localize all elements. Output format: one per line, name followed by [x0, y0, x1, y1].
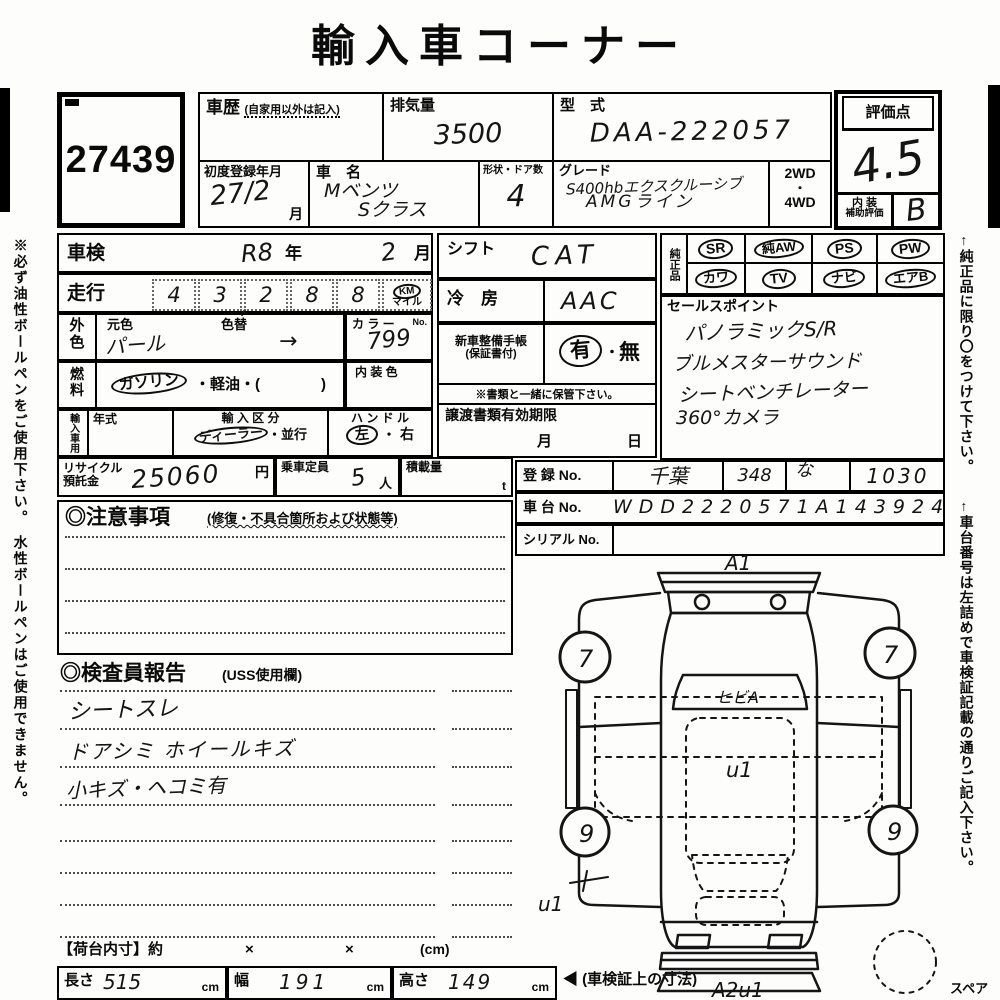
drive-2wd: 2WD	[770, 166, 830, 182]
wheel-depth-rr: 9	[887, 818, 902, 846]
rear-window	[692, 855, 788, 891]
load-unit: t	[502, 480, 506, 493]
equip-sr: SR	[688, 235, 746, 264]
dotted-line	[452, 936, 512, 938]
shaken-year-unit: 年	[285, 244, 302, 263]
drive-4wd: 4WD	[770, 195, 830, 211]
sales-point-line: 360°カメラ	[676, 409, 943, 428]
right-rail	[900, 690, 911, 808]
transfer-month: 月	[537, 434, 552, 451]
car-name-line2: Sクラス	[358, 201, 478, 220]
odometer-digit-cell: 8	[336, 279, 380, 311]
damage-code-roof: u1	[726, 758, 753, 782]
dotted-line	[60, 804, 435, 806]
import-row: 輸入車用 年式 輸 入 区 分 ディーラー・並行 ハ ン ド ル 左 ・ 右	[57, 409, 433, 457]
model-year-label: 年式	[93, 413, 117, 426]
odometer-digit-cell: 8	[290, 279, 334, 311]
dotted-line	[452, 804, 512, 806]
dotted-line	[452, 872, 512, 874]
import-class-parallel: ・並行	[268, 427, 307, 442]
damage-code-front: A1	[723, 551, 751, 575]
fuel-label: 燃 料	[59, 363, 97, 407]
aircon-value: AAC	[561, 289, 620, 313]
doors-cell: 形状・ドア数 4	[478, 160, 554, 228]
damage-code-rear: A2u1	[710, 978, 764, 1000]
capacity-value: 5	[349, 466, 367, 491]
dotted-line	[65, 568, 505, 570]
import-row-label: 輸入車用	[59, 411, 89, 455]
cargo-x2: ×	[345, 942, 354, 959]
shaken-label: 車検	[67, 243, 105, 264]
recycle-unit: 円	[255, 465, 269, 481]
displacement-label: 排気量	[390, 98, 435, 115]
history-cell: 車歴 (自家用以外は記入)	[198, 92, 384, 162]
sales-point-line: シートベンチレーター	[678, 377, 944, 405]
registration-label: 登 録 No.	[523, 468, 581, 484]
genuine-parts-box: 純正品 SR 純AW PS PW カワ TV ナビ エアB	[660, 233, 945, 295]
displacement-value: 3500	[384, 118, 553, 151]
interior-color-label: 内 装 色	[355, 366, 398, 379]
recycle-cell: リサイクル 預託金 25060 円	[57, 457, 275, 497]
interior-grade-value: B	[894, 192, 938, 226]
transfer-docs-label: 譲渡書類有効期限	[445, 408, 655, 424]
history-label: 車歴	[206, 98, 240, 117]
service-book-yes-circled: 有	[558, 333, 604, 368]
doors-value: 4	[480, 182, 552, 212]
base-color-label: 元色	[107, 318, 133, 333]
equip-leather: カワ	[688, 264, 746, 293]
load-cell: 積載量 t	[400, 457, 513, 497]
service-book-label: 新車整備手帳 (保証書付)	[439, 325, 545, 383]
recycle-value: 25060	[130, 461, 221, 492]
dotted-line	[65, 632, 505, 634]
cargo-x1: ×	[245, 942, 254, 959]
handle-left-circled: 左	[345, 424, 379, 446]
dotted-line	[60, 766, 435, 768]
exterior-color-label: 外 色	[59, 315, 97, 359]
equip-ps: PS	[813, 235, 878, 264]
left-rail	[566, 690, 577, 808]
dotted-line	[60, 872, 435, 874]
shift-cell: シフト CAT	[437, 233, 657, 279]
shift-value: CAT	[531, 242, 600, 270]
first-registration-cell: 初度登録年月 27/2 月	[198, 160, 310, 228]
sales-point-line: パノラミックS/R	[684, 314, 944, 343]
odometer-digit-cell: 4	[152, 279, 196, 311]
page-title: 輸入車コーナー	[0, 22, 1000, 71]
shaken-month-unit: 月	[414, 244, 431, 263]
chassis-row: 車 台 No. WDD2220571A143924	[515, 492, 945, 524]
dotted-line	[452, 728, 512, 730]
chassis-label: 車 台 No.	[523, 500, 581, 516]
service-book-no: 無	[619, 341, 640, 365]
caution-note: (修復・不具合箇所および状態等)	[207, 512, 398, 527]
drive-dot: ・	[770, 182, 830, 195]
inspector-note: (USS使用欄)	[222, 668, 302, 684]
equip-aw: 純AW	[746, 235, 813, 264]
dotted-line	[452, 766, 512, 768]
spare-tire-mark	[874, 931, 936, 993]
equip-airbag: エアB	[878, 264, 943, 293]
left-margin-note: ※必ず油性ボールペンをご使用下さい。 水性ボールペンはご使用できません。	[12, 238, 28, 838]
dotted-line	[60, 690, 435, 692]
scan-edge-left	[0, 88, 10, 212]
inspector-header: ◎検査員報告	[60, 662, 186, 686]
odometer-digit-cell: 2	[244, 279, 288, 311]
fuel-other: ・軽油・(	[195, 377, 260, 394]
model-code-label: 型 式	[560, 98, 605, 115]
interior-color-cell: 内 装 色	[345, 361, 433, 409]
color-no-cell: カ ラ ー No. 799	[345, 313, 433, 361]
equip-pw: PW	[878, 235, 943, 264]
equip-tv: TV	[746, 264, 813, 293]
exterior-color-row: 外 色 元色 パール 色替 →	[57, 313, 345, 361]
score-value: 4.5	[835, 131, 941, 194]
first-registration-unit: 月	[289, 207, 303, 223]
chassis-value: WDD2220571A143924	[613, 498, 950, 517]
shaken-year: R8	[240, 240, 274, 266]
odometer-unit-cell: KM マイル	[382, 279, 432, 311]
car-damage-diagram: A1 ヒビA u1 u1 A2u1 7 7 9 9	[520, 545, 960, 1000]
grade-cell: グレード S400hbエクスクルーシブ AMGライン	[552, 160, 770, 228]
dotted-line	[452, 690, 512, 692]
lot-number-box: 27439	[57, 92, 185, 228]
service-book-dot: ・	[605, 345, 619, 361]
dotted-line	[452, 904, 512, 906]
score-box: 評価点 4.5 内 装 補助評価 B	[834, 90, 942, 230]
right-margin-note-chassis: ←車台番号は左詰めで車検証記載の通りご記入下さい。	[958, 500, 974, 960]
damage-code-windshield: ヒビA	[716, 688, 759, 707]
dotted-line	[60, 936, 435, 938]
model-code-cell: 型 式 DAA-222057	[552, 92, 832, 162]
spare-label: スペア	[950, 982, 988, 997]
handle-right: 右	[400, 426, 414, 442]
sales-point-line: ブルメスターサウンド	[672, 350, 943, 374]
genuine-parts-label: 純正品	[662, 235, 688, 293]
dealer-circled: ディーラー	[193, 424, 268, 447]
history-note: (自家用以外は記入)	[244, 104, 339, 118]
sales-points-box: セールスポイント パノラミックS/R ブルメスターサウンド シートベンチレーター…	[660, 295, 945, 460]
right-margin-note-parts: ←純正品に限り〇をつけて下さい。	[958, 234, 974, 494]
first-registration-value: 27/2	[209, 176, 272, 209]
dotted-line	[65, 536, 505, 538]
plate-number: 1030	[849, 462, 945, 490]
model-code-value: DAA-222057	[554, 117, 830, 148]
handle-separator: ・	[382, 427, 395, 442]
plate-kana: な	[785, 462, 849, 490]
displacement-cell: 排気量 3500	[382, 92, 554, 162]
inspector-finding: 小キズ・ヘコミ有	[66, 775, 227, 801]
caution-box: ◎注意事項 (修復・不具合箇所および状態等)	[57, 500, 513, 655]
handle-label: ハ ン ド ル	[329, 412, 431, 425]
model-year-cell: 年式	[89, 411, 174, 455]
fuel-gasoline-circled: ガソリン	[110, 370, 188, 397]
aircon-row: 冷 房 AAC	[437, 279, 657, 323]
sales-points-label: セールスポイント	[667, 299, 943, 315]
base-color-value: パール	[104, 333, 165, 357]
damage-code-side: u1	[538, 892, 563, 916]
dotted-line	[65, 600, 505, 602]
cargo-label: 【荷台内寸】約	[58, 942, 163, 959]
mileage-row: 走行 4 3 2 8 8 , KM マイル	[57, 273, 433, 313]
service-book-note: ※書類と一緒に保管下さい。	[437, 385, 657, 403]
width-value: 191	[279, 972, 329, 992]
plate-class: 348	[722, 462, 785, 490]
plate-region: 千葉	[612, 462, 722, 490]
car-name-cell: 車 名 Mベンツ Sクラス	[308, 160, 480, 228]
lot-number: 27439	[66, 139, 177, 182]
capacity-cell: 乗車定員 5 人	[275, 457, 400, 497]
capacity-unit: 人	[379, 477, 392, 492]
transfer-day: 日	[627, 434, 642, 451]
shift-label: シフト	[447, 241, 495, 259]
car-name-line1: Mベンツ	[324, 182, 478, 201]
drive-type-cell: 2WD ・ 4WD	[768, 160, 832, 228]
inspector-finding: ドアシミ ホイールキズ	[68, 738, 296, 762]
wheel-depth-rl: 9	[579, 820, 594, 848]
aircon-label: 冷 房	[439, 281, 545, 321]
length-cell: 長さ 515 cm	[57, 966, 227, 1000]
auction-sheet: 輸入車コーナー 27439 車歴 (自家用以外は記入) 排気量 3500 型 式…	[0, 0, 1000, 1000]
import-class-cell: 輸 入 区 分 ディーラー・並行	[174, 411, 329, 455]
score-header: 評価点	[842, 96, 934, 131]
dotted-line	[60, 728, 435, 730]
shaken-row: 車検 R8 年 2 月	[57, 233, 433, 273]
capacity-label: 乗車定員	[281, 461, 398, 474]
scan-edge-right	[988, 85, 1000, 228]
inspector-finding: シートスレ	[68, 698, 179, 724]
shaken-month: 2	[379, 239, 397, 265]
doors-label: 形状・ドア数	[483, 165, 552, 176]
color-change-value: →	[279, 331, 297, 353]
handle-cell: ハ ン ド ル 左 ・ 右	[329, 411, 431, 455]
interior-grade-label: 内 装 補助評価	[838, 192, 894, 226]
wheel-depth-fr: 7	[883, 641, 899, 669]
dotted-line	[60, 904, 435, 906]
fuel-row: 燃 料 ガソリン ・軽油・( )	[57, 361, 345, 409]
color-change-label: 色替	[221, 318, 247, 333]
length-value: 515	[103, 972, 141, 992]
cargo-unit: (cm)	[420, 942, 450, 958]
caution-header: ◎注意事項	[65, 506, 170, 530]
height-value: 149	[448, 972, 492, 992]
transfer-docs-cell: 譲渡書類有効期限 月 日	[437, 403, 657, 458]
wheel-depth-fl: 7	[578, 645, 594, 673]
dotted-line	[60, 840, 435, 842]
dotted-line	[452, 840, 512, 842]
odometer-digit-cell: 3	[198, 279, 242, 311]
equip-navi: ナビ	[813, 264, 878, 293]
fuel-paren-close: )	[321, 377, 326, 394]
width-cell: 幅 191 cm	[227, 966, 392, 1000]
registration-row: 登 録 No. 千葉 348 な 1030	[515, 460, 945, 492]
service-book-row: 新車整備手帳 (保証書付) 有 ・ 無	[437, 323, 657, 385]
load-label: 積載量	[406, 461, 511, 474]
import-class-label: 輸 入 区 分	[174, 412, 327, 425]
mileage-label: 走行	[67, 283, 105, 304]
